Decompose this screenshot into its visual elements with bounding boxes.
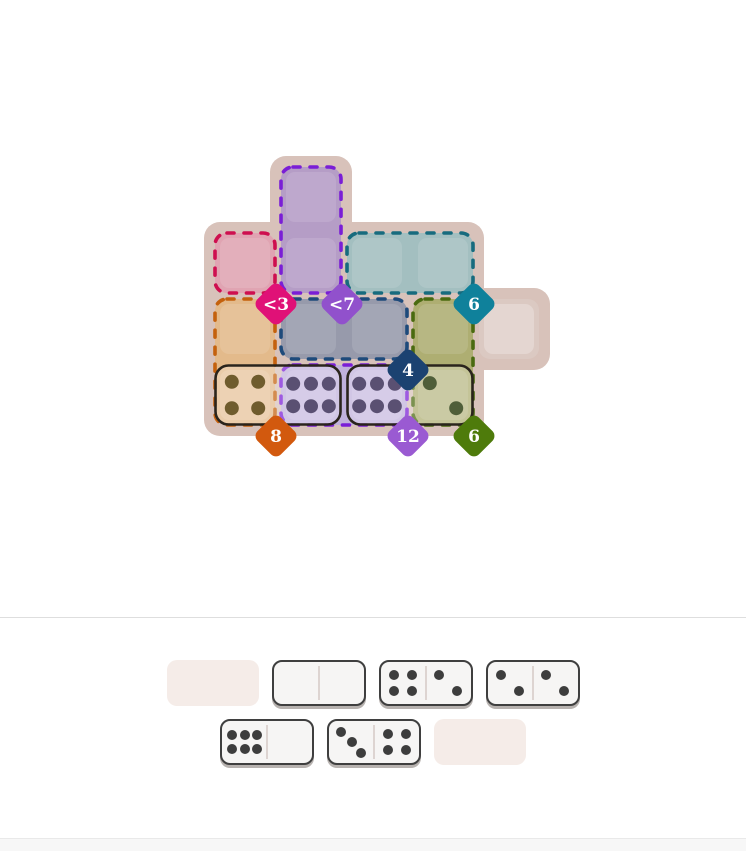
tray-slot-empty <box>167 660 259 706</box>
domino-half-2 <box>426 662 471 704</box>
domino-half-0 <box>267 721 312 763</box>
domino-half-0 <box>274 662 319 704</box>
pip <box>304 377 318 391</box>
tray-row-2 <box>220 719 526 765</box>
constraint-label: <7 <box>329 295 355 315</box>
pip <box>370 399 384 413</box>
region-violet <box>281 167 341 293</box>
bottom-bar <box>0 838 746 851</box>
pip <box>252 744 262 754</box>
domino-half-4 <box>381 662 426 704</box>
constraint-label: 6 <box>468 295 480 315</box>
pip <box>352 377 366 391</box>
cell[interactable] <box>352 238 402 288</box>
tray-domino-6-0[interactable] <box>220 719 314 765</box>
tray-slot-empty <box>434 719 526 765</box>
cell[interactable] <box>352 304 402 354</box>
domino-half-0 <box>319 662 364 704</box>
domino-half-4 <box>374 721 419 763</box>
pip <box>240 744 250 754</box>
tray-domino-0-0[interactable] <box>272 660 366 706</box>
placed-domino-body <box>216 366 341 425</box>
pip <box>227 744 237 754</box>
cell[interactable] <box>286 238 336 288</box>
pip <box>407 670 417 680</box>
cell[interactable] <box>418 238 468 288</box>
pip <box>251 401 265 415</box>
pip <box>286 399 300 413</box>
pip <box>336 727 346 737</box>
pip <box>452 686 462 696</box>
pip <box>496 670 506 680</box>
pip <box>434 670 444 680</box>
domino-tray <box>0 660 746 765</box>
pip <box>541 670 551 680</box>
pip <box>322 377 336 391</box>
domino-half-2 <box>533 662 578 704</box>
empty-cell-highlight <box>484 304 534 354</box>
region-pink <box>215 233 275 293</box>
pip <box>389 686 399 696</box>
pip <box>225 401 239 415</box>
constraint-label: <3 <box>263 295 289 315</box>
pip <box>352 399 366 413</box>
tray-domino-3-4[interactable] <box>327 719 421 765</box>
constraint-label: 12 <box>396 427 420 447</box>
pip <box>356 748 366 758</box>
pip <box>388 399 402 413</box>
pip <box>401 729 411 739</box>
pip <box>370 377 384 391</box>
pip <box>251 375 265 389</box>
pip <box>240 730 250 740</box>
pip <box>449 401 463 415</box>
pip <box>252 730 262 740</box>
tray-row-1 <box>167 660 580 706</box>
pip <box>383 729 393 739</box>
tray-divider <box>0 617 746 618</box>
tray-domino-2-2[interactable] <box>486 660 580 706</box>
domino-half-3 <box>329 721 374 763</box>
pip <box>401 745 411 755</box>
puzzle-board: <3<7684612 <box>0 0 746 617</box>
cell[interactable] <box>286 172 336 222</box>
pip <box>514 686 524 696</box>
domino-half-6 <box>222 721 267 763</box>
pip <box>423 376 437 390</box>
pip <box>322 399 336 413</box>
region-teal <box>347 233 473 293</box>
tray-domino-4-2[interactable] <box>379 660 473 706</box>
domino-half-2 <box>488 662 533 704</box>
pip <box>347 737 357 747</box>
pip <box>227 730 237 740</box>
pip <box>286 377 300 391</box>
placed-domino-4-6[interactable] <box>216 366 341 425</box>
cell[interactable] <box>220 238 270 288</box>
constraint-label: 4 <box>402 361 414 381</box>
pip <box>383 745 393 755</box>
pip <box>559 686 569 696</box>
pip <box>304 399 318 413</box>
pip <box>407 686 417 696</box>
pip <box>389 670 399 680</box>
constraint-label: 8 <box>270 427 282 447</box>
pip <box>225 375 239 389</box>
constraint-label: 6 <box>468 427 480 447</box>
